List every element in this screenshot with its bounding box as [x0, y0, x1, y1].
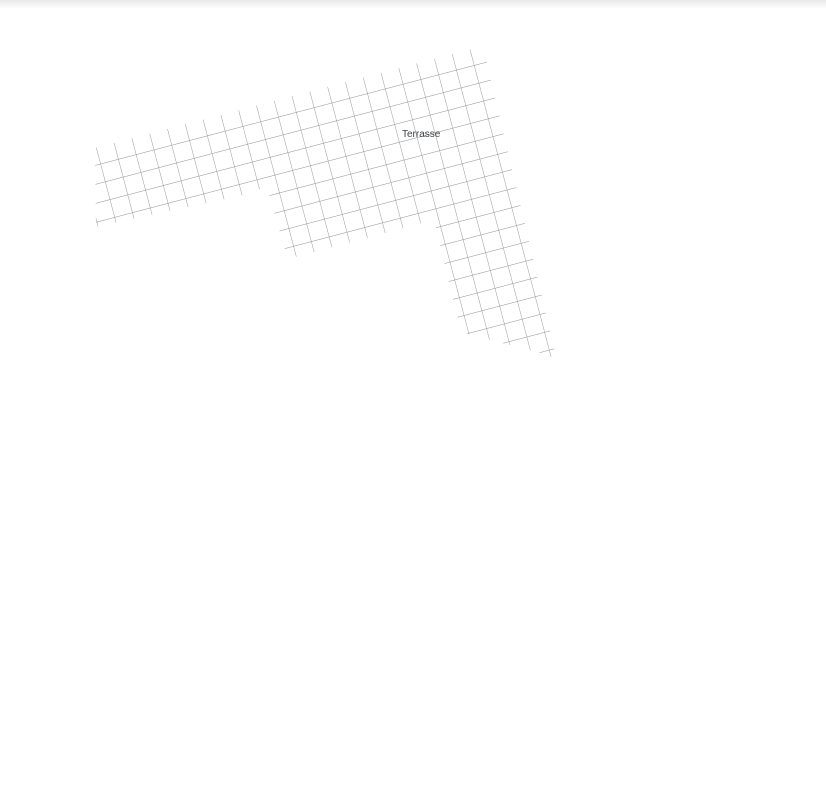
svg-text:Terrasse: Terrasse: [402, 129, 441, 140]
